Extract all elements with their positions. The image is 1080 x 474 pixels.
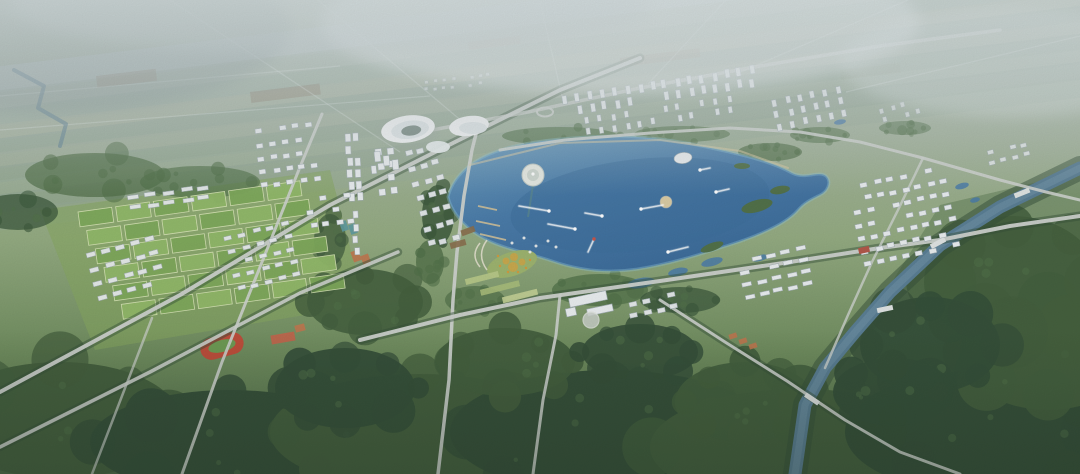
aerial-render-stage <box>0 0 1080 474</box>
atmosphere-layer <box>0 0 1080 474</box>
film-grain <box>0 0 1080 474</box>
aerial-render-canvas <box>0 0 1080 474</box>
